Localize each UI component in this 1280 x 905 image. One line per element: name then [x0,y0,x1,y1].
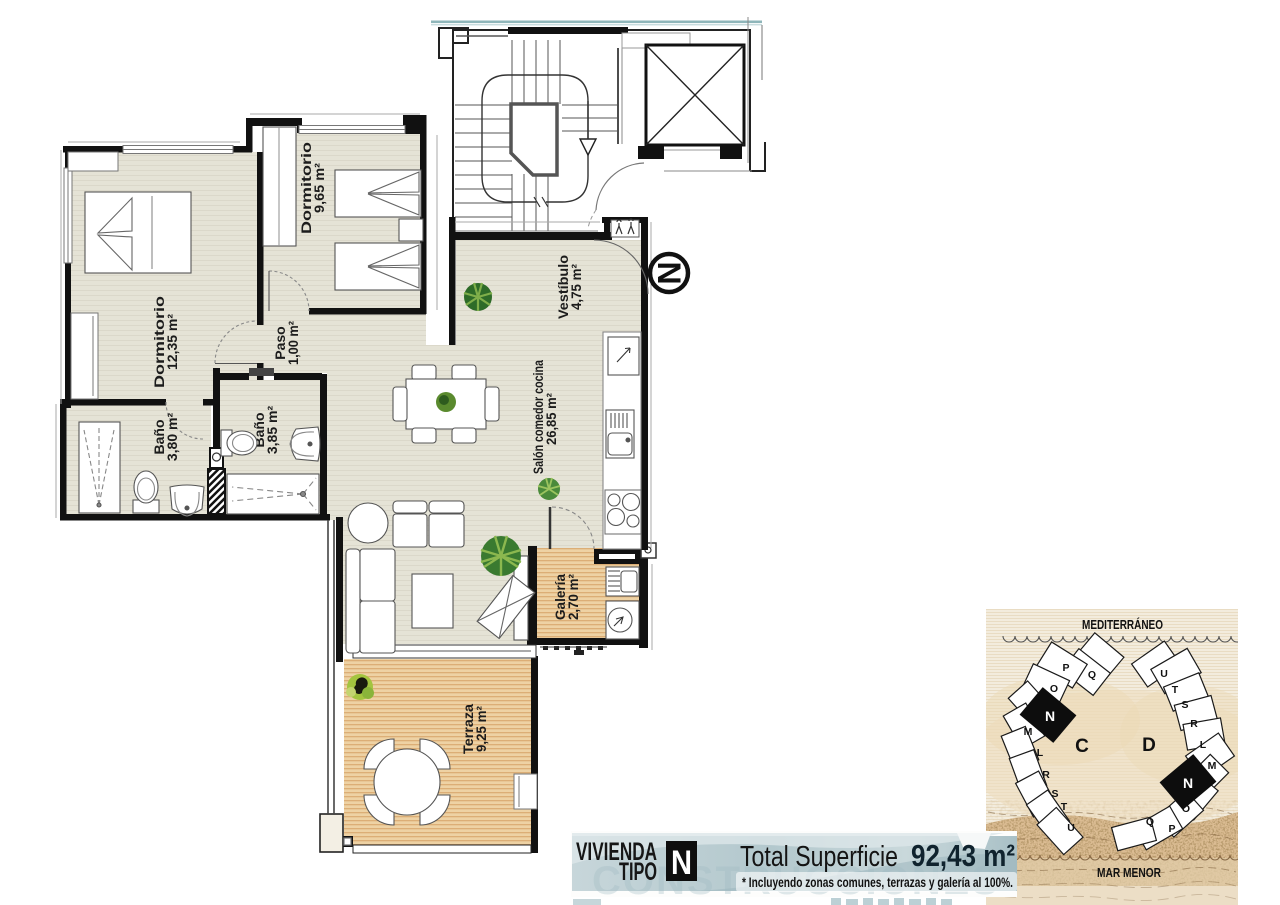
svg-text:T: T [1061,801,1068,813]
svg-text:N: N [671,844,692,882]
svg-text:9,25 m²: 9,25 m² [473,706,489,752]
svg-text:12,35 m²: 12,35 m² [164,314,180,370]
svg-text:9,65 m²: 9,65 m² [311,163,327,213]
svg-text:4,75 m²: 4,75 m² [568,264,584,310]
svg-text:L: L [1200,739,1207,751]
svg-text:S: S [1181,699,1188,711]
svg-text:3,80 m²: 3,80 m² [164,413,180,462]
svg-text:U: U [1160,668,1168,680]
svg-text:D: D [1142,735,1156,756]
svg-text:26,85 m²: 26,85 m² [543,393,559,445]
svg-text:N: N [1183,775,1193,791]
svg-text:3,85 m²: 3,85 m² [264,406,280,455]
svg-text:92,43 m²: 92,43 m² [911,838,1015,873]
svg-text:MEDITERRÁNEO: MEDITERRÁNEO [1082,617,1163,632]
svg-text:1,00 m²: 1,00 m² [285,321,301,365]
svg-text:Q: Q [1146,816,1154,828]
svg-text:2,70 m²: 2,70 m² [565,574,581,620]
svg-text:Q: Q [1088,669,1096,681]
svg-text:U: U [1067,822,1075,834]
svg-text:MAR MENOR: MAR MENOR [1097,866,1161,880]
svg-text:Total Superficie: Total Superficie [740,841,898,873]
svg-text:P: P [1062,662,1069,674]
svg-text:N: N [1045,708,1055,724]
svg-text:M: M [1024,726,1033,738]
svg-text:N: N [651,261,687,284]
svg-text:C: C [1075,736,1089,757]
svg-text:T: T [1172,684,1179,696]
svg-text:O: O [1050,683,1058,695]
svg-text:O: O [1182,803,1190,815]
svg-text:R: R [1190,718,1198,730]
svg-text:TIPO: TIPO [619,858,657,886]
svg-text:* Incluyendo zonas comunes, te: * Incluyendo zonas comunes, terrazas y g… [742,875,1013,890]
svg-text:S: S [1051,788,1058,800]
svg-text:P: P [1168,823,1175,835]
svg-text:M: M [1208,760,1217,772]
svg-text:L: L [1037,747,1044,759]
svg-text:R: R [1042,769,1050,781]
